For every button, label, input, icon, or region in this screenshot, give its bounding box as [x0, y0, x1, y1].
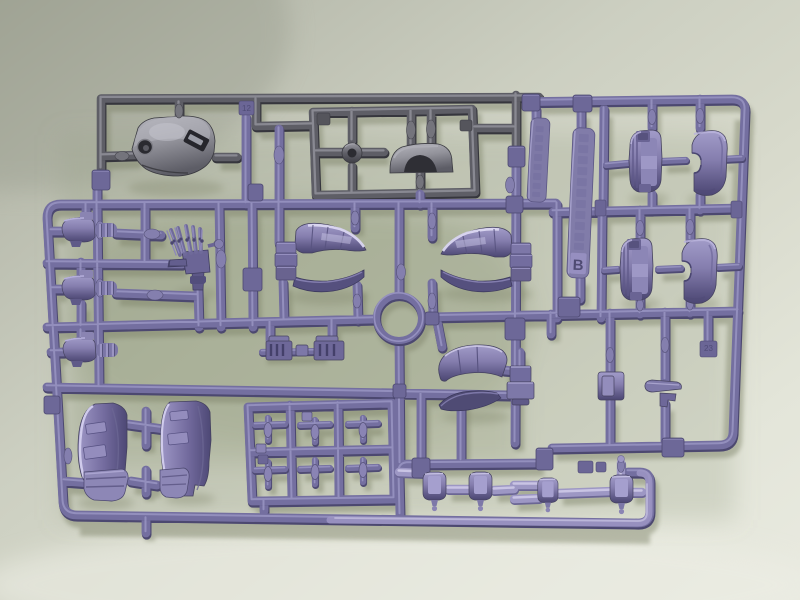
- svg-text:B: B: [572, 257, 584, 274]
- svg-text:23: 23: [704, 344, 713, 353]
- svg-text:12: 12: [242, 104, 251, 113]
